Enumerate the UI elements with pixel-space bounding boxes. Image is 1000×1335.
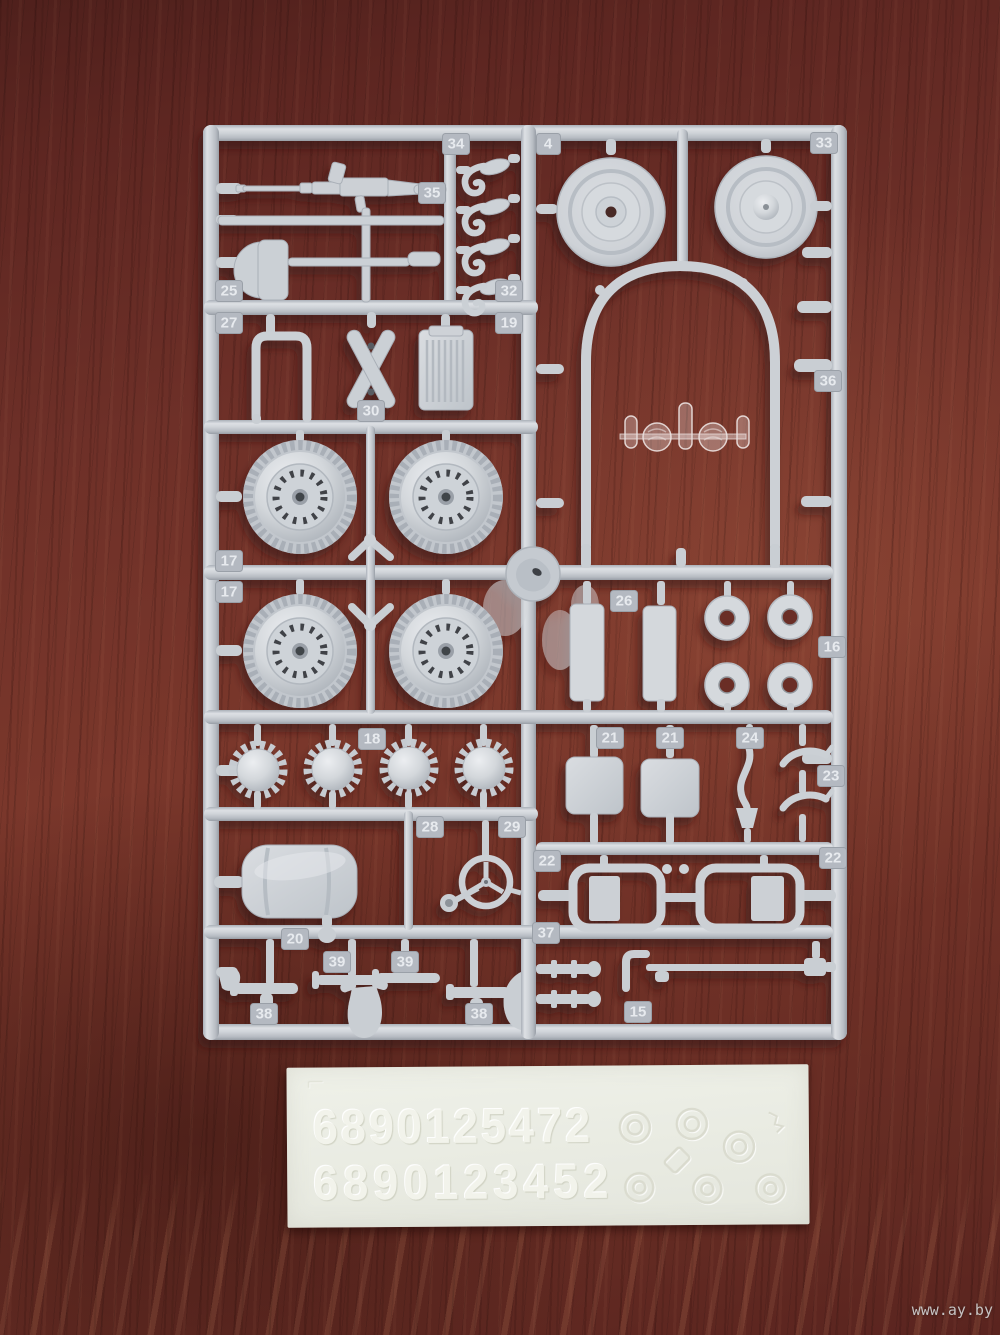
radiator-part	[419, 314, 473, 410]
sprue-gate-blob	[506, 547, 560, 601]
part-number-tag: 22	[820, 848, 847, 869]
svg-text:28: 28	[422, 819, 439, 836]
photo: 34 4 33 35 25 32 27 19 30 36 17 17 26 16…	[0, 0, 1000, 1335]
svg-text:22: 22	[825, 850, 842, 867]
svg-text:34: 34	[448, 136, 465, 153]
part-number-tag: 38	[466, 1004, 493, 1025]
part-number-tag: 17	[216, 551, 243, 572]
svg-text:39: 39	[329, 954, 346, 971]
decal-sheet: 6890125472 6890123452	[286, 1064, 809, 1228]
svg-text:15: 15	[630, 1004, 647, 1021]
svg-text:33: 33	[816, 135, 833, 152]
sprue-frame	[203, 125, 847, 1040]
part-number-tag: 4	[537, 134, 561, 155]
part-number-tag: 30	[358, 401, 385, 422]
axle-and-bolt-parts	[536, 954, 836, 1008]
u-bracket-part	[252, 314, 307, 424]
decal-roundels	[286, 1064, 809, 1228]
svg-text:22: 22	[539, 853, 556, 870]
part-number-tag: 25	[216, 281, 243, 302]
svg-text:30: 30	[363, 403, 380, 420]
svg-text:36: 36	[820, 373, 837, 390]
part-number-tag: 21	[597, 728, 624, 749]
svg-text:17: 17	[221, 584, 238, 601]
svg-text:25: 25	[221, 283, 238, 300]
svg-text:37: 37	[538, 925, 555, 942]
part-number-tag: 19	[496, 313, 523, 334]
part-number-tag: 28	[417, 817, 444, 838]
axle-rod-part	[218, 216, 444, 225]
part-number-tag: 24	[737, 728, 764, 749]
svg-text:38: 38	[471, 1006, 488, 1023]
part-number-tag: 29	[499, 817, 526, 838]
svg-text:16: 16	[824, 639, 841, 656]
svg-text:21: 21	[662, 730, 679, 747]
svg-text:39: 39	[397, 954, 414, 971]
part-number-tag: 27	[216, 313, 243, 334]
part-number-tag: 39	[392, 952, 419, 973]
svg-text:4: 4	[544, 136, 553, 153]
part-number-tag: 37	[533, 923, 560, 944]
svg-text:20: 20	[287, 931, 304, 948]
washer-parts	[705, 581, 812, 712]
svg-text:24: 24	[742, 730, 759, 747]
svg-text:18: 18	[364, 731, 381, 748]
door-frame-parts	[538, 855, 836, 928]
part-number-tag: 36	[815, 371, 842, 392]
svg-text:19: 19	[501, 315, 518, 332]
part-number-tag: 35	[419, 183, 446, 204]
part-number-tag: 34	[443, 134, 470, 155]
part-number-tag: 26	[611, 591, 638, 612]
part-number-tag: 15	[625, 1002, 652, 1023]
svg-text:17: 17	[221, 553, 238, 570]
x-brace-part	[345, 312, 398, 410]
part-number-tag: 39	[324, 952, 351, 973]
svg-text:32: 32	[501, 283, 518, 300]
watermark: www.ay.by	[912, 1301, 993, 1319]
part-number-tag: 20	[282, 929, 309, 950]
part-number-tag: 38	[251, 1004, 278, 1025]
part-number-tag: 17	[216, 582, 243, 603]
part-number-tag: 21	[657, 728, 684, 749]
part-number-tag: 22	[534, 851, 561, 872]
svg-text:26: 26	[616, 593, 633, 610]
svg-text:29: 29	[504, 819, 521, 836]
part-number-tag: 33	[811, 133, 838, 154]
disc-wheel-part	[557, 158, 665, 266]
disc-wheel-part	[715, 156, 832, 258]
svg-text:35: 35	[424, 185, 441, 202]
part-number-tag: 16	[819, 637, 846, 658]
svg-text:38: 38	[256, 1006, 273, 1023]
svg-text:21: 21	[602, 730, 619, 747]
bracket-and-rod-part	[234, 240, 440, 300]
svg-text:23: 23	[823, 768, 840, 785]
part-number-tag: 32	[496, 281, 523, 302]
part-number-tag: 23	[818, 766, 845, 787]
svg-text:27: 27	[221, 315, 238, 332]
part-number-tag: 18	[359, 729, 386, 750]
clear-lens-sprue	[620, 403, 749, 451]
